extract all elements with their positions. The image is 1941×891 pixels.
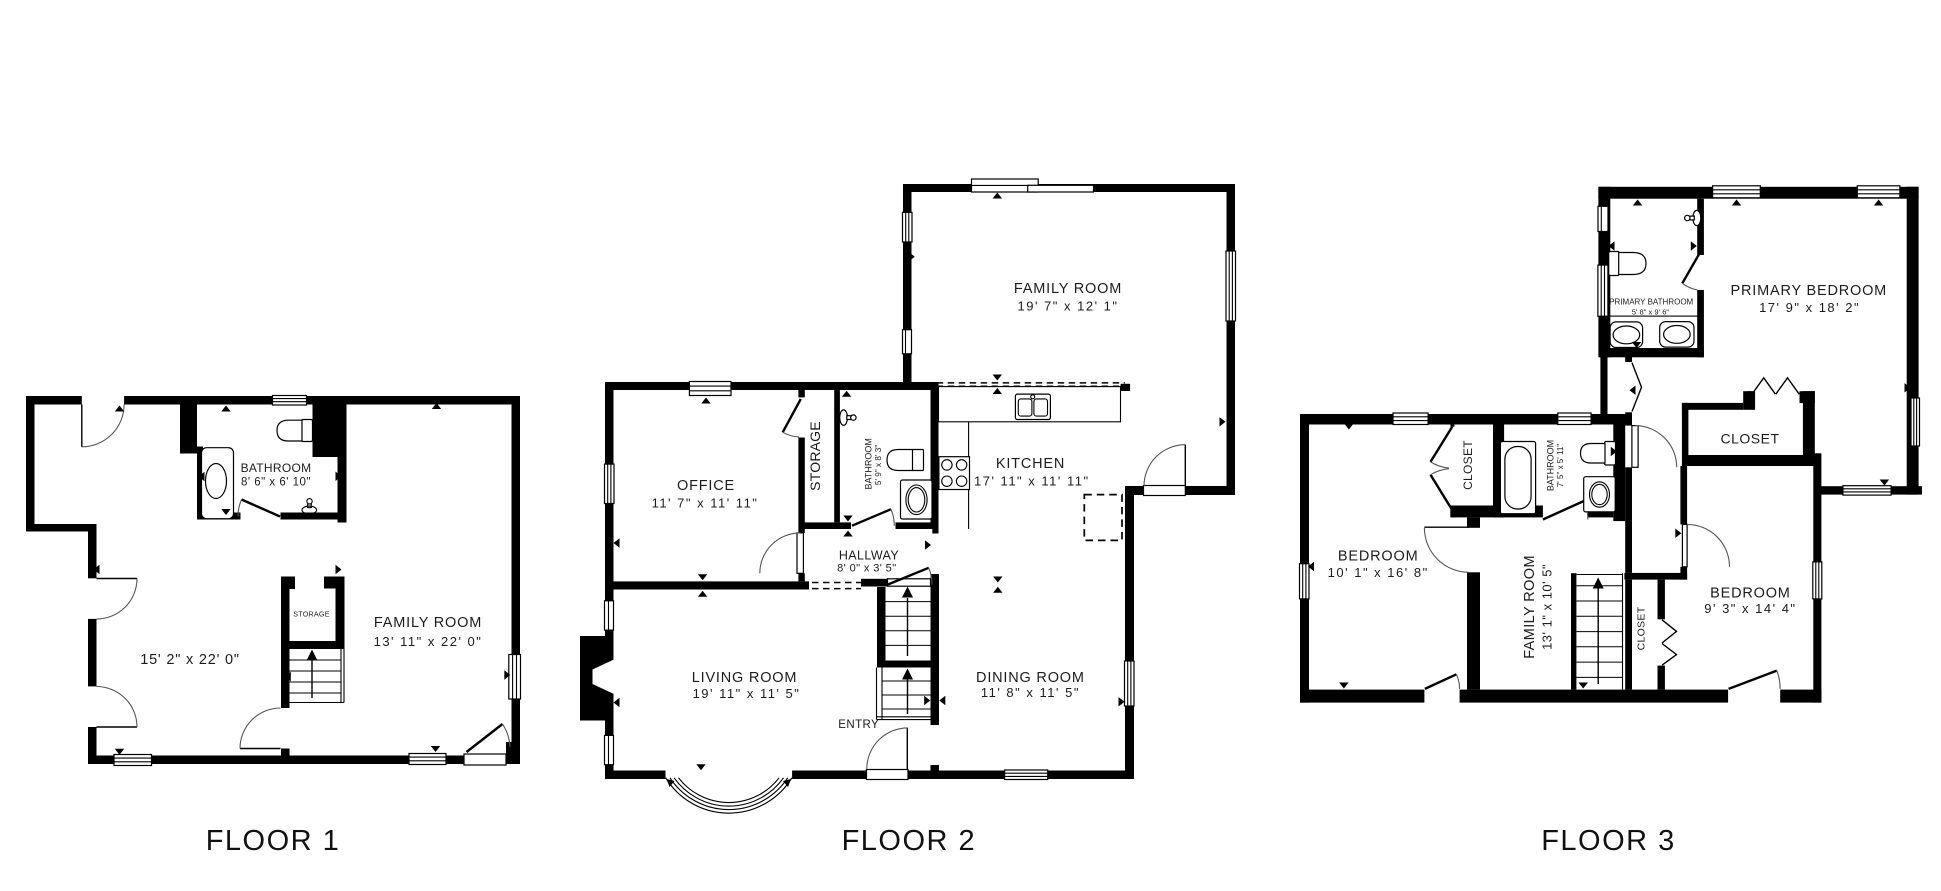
svg-text:11' 8" x 11' 5": 11' 8" x 11' 5" (981, 685, 1080, 700)
svg-text:CLOSET: CLOSET (1461, 440, 1475, 490)
svg-text:CLOSET: CLOSET (1636, 606, 1648, 650)
svg-text:9' 3" x 14' 4": 9' 3" x 14' 4" (1704, 601, 1796, 616)
svg-text:BATHROOM: BATHROOM (864, 438, 874, 489)
svg-text:LIVING ROOM: LIVING ROOM (692, 670, 797, 686)
svg-text:CLOSET: CLOSET (1720, 430, 1779, 446)
svg-text:10' 1" x 16' 8": 10' 1" x 16' 8" (1328, 565, 1429, 580)
svg-text:KITCHEN: KITCHEN (996, 456, 1065, 472)
svg-text:FAMILY ROOM: FAMILY ROOM (374, 615, 482, 631)
svg-text:OFFICE: OFFICE (677, 478, 735, 494)
svg-text:11' 7" x 11' 11": 11' 7" x 11' 11" (652, 496, 759, 511)
svg-text:ENTRY: ENTRY (838, 719, 879, 731)
svg-text:17' 9" x 18' 2": 17' 9" x 18' 2" (1759, 300, 1860, 315)
svg-text:13' 11" x 22' 0": 13' 11" x 22' 0" (374, 634, 483, 649)
svg-text:FAMILY ROOM: FAMILY ROOM (1522, 555, 1538, 659)
svg-text:FAMILY ROOM: FAMILY ROOM (1014, 281, 1122, 297)
svg-text:BEDROOM: BEDROOM (1338, 548, 1419, 564)
svg-text:19' 11" x 11' 5": 19' 11" x 11' 5" (693, 686, 801, 701)
svg-text:5' 9" x 8' 3": 5' 9" x 8' 3" (874, 445, 883, 485)
svg-text:PRIMARY BATHROOM: PRIMARY BATHROOM (1609, 298, 1693, 307)
svg-text:19' 7" x 12' 1": 19' 7" x 12' 1" (1017, 299, 1118, 314)
svg-text:7' 5" x 5' 11": 7' 5" x 5' 11" (1556, 444, 1565, 487)
svg-text:HALLWAY: HALLWAY (839, 549, 899, 563)
svg-text:5' 8" x 9' 6": 5' 8" x 9' 6" (1632, 307, 1670, 316)
svg-text:8' 6" x 6' 10": 8' 6" x 6' 10" (241, 477, 311, 489)
svg-text:DINING ROOM: DINING ROOM (976, 670, 1085, 686)
svg-text:15' 2" x 22' 0": 15' 2" x 22' 0" (140, 652, 240, 668)
svg-text:13' 1" x 10' 5": 13' 1" x 10' 5" (1539, 564, 1554, 650)
svg-text:8' 0" x 3' 5": 8' 0" x 3' 5" (837, 563, 896, 575)
svg-text:BEDROOM: BEDROOM (1710, 585, 1791, 601)
svg-text:STORAGE: STORAGE (293, 610, 329, 619)
svg-text:BATHROOM: BATHROOM (1546, 440, 1556, 491)
svg-text:FLOOR 1: FLOOR 1 (206, 825, 341, 857)
svg-text:FLOOR 2: FLOOR 2 (842, 825, 977, 857)
svg-text:FLOOR 3: FLOOR 3 (1541, 825, 1676, 857)
svg-text:17' 11" x 11' 11": 17' 11" x 11' 11" (974, 474, 1090, 489)
svg-text:PRIMARY BEDROOM: PRIMARY BEDROOM (1731, 283, 1888, 299)
svg-text:STORAGE: STORAGE (807, 421, 823, 491)
svg-text:BATHROOM: BATHROOM (241, 461, 312, 475)
